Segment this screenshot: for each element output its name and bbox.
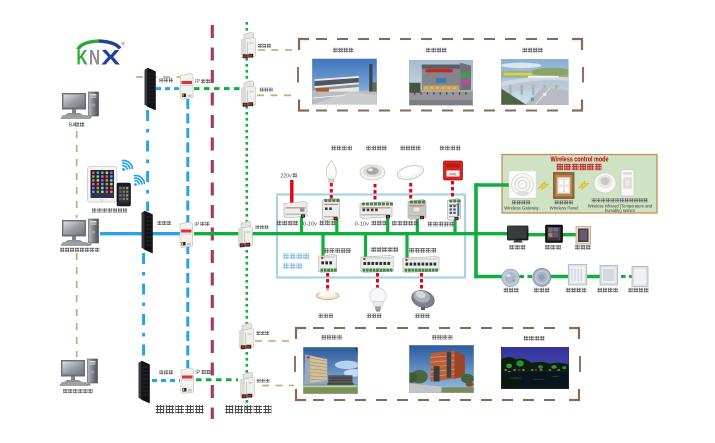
svg-text:humidity) sensor: humidity) sensor <box>605 208 636 213</box>
svg-text:Wireless Gateway: Wireless Gateway <box>504 206 539 211</box>
svg-text:FIRE: FIRE <box>449 172 456 176</box>
svg-text:X: X <box>101 47 120 70</box>
svg-text:N: N <box>89 47 100 70</box>
svg-text:®: ® <box>122 41 126 47</box>
svg-text:0-10v: 0-10v <box>355 221 369 227</box>
svg-text:0-10v: 0-10v <box>303 221 317 227</box>
svg-text:Wireless Panel: Wireless Panel <box>550 206 579 211</box>
svg-text:Wireless control mode: Wireless control mode <box>551 156 609 163</box>
svg-text:IP: IP <box>195 79 200 85</box>
svg-text:220v: 220v <box>281 174 292 180</box>
svg-text:IP: IP <box>194 222 199 228</box>
svg-text:K: K <box>77 47 88 70</box>
svg-text:IP: IP <box>195 370 200 376</box>
